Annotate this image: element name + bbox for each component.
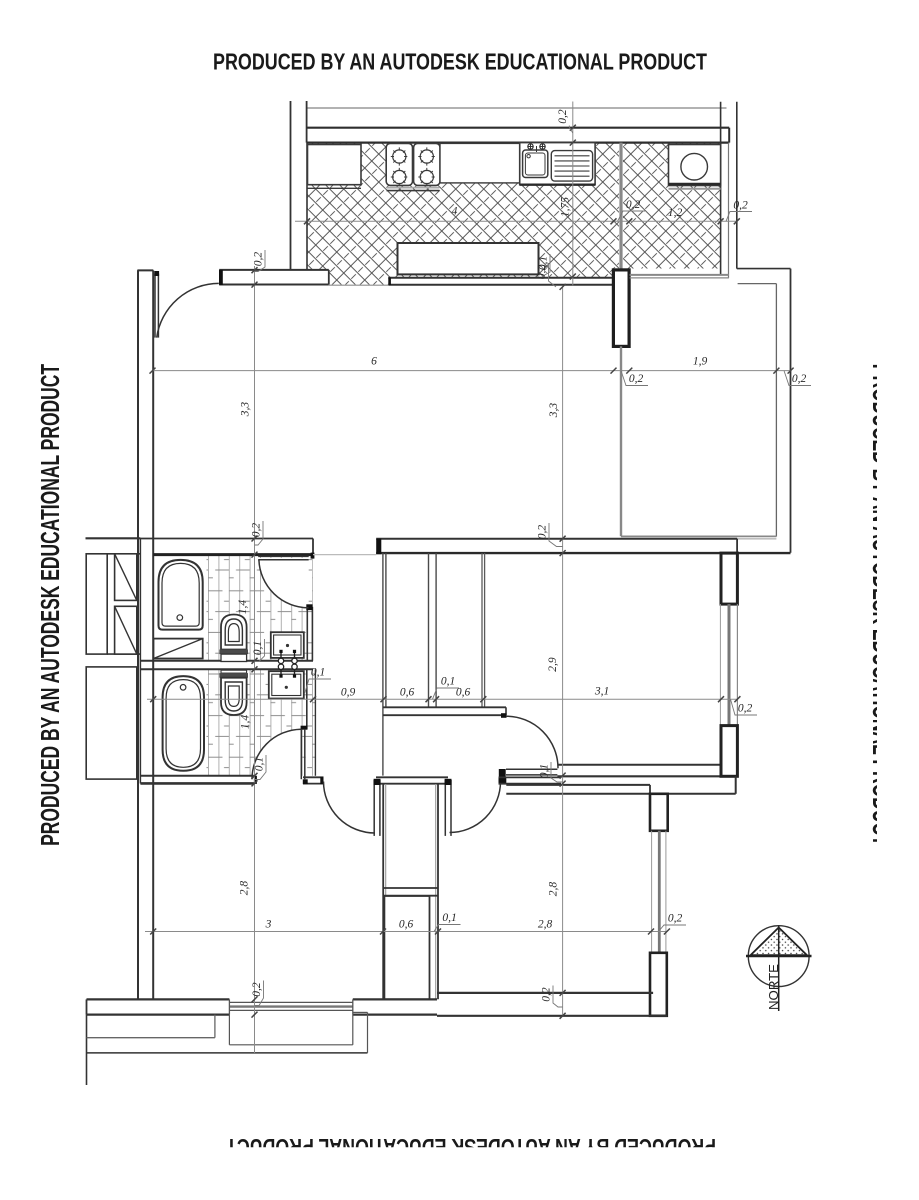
svg-text:2,8: 2,8 xyxy=(538,919,553,931)
svg-text:0,2: 0,2 xyxy=(738,703,753,715)
svg-text:0,2: 0,2 xyxy=(536,265,548,280)
svg-text:0,2: 0,2 xyxy=(626,199,641,211)
svg-text:0,1: 0,1 xyxy=(442,912,456,924)
svg-text:PRODUCED BY AN AUTODESK EDUCAT: PRODUCED BY AN AUTODESK EDUCATIONAL PROD… xyxy=(37,364,65,846)
svg-text:0,2: 0,2 xyxy=(541,987,553,1002)
svg-text:NORTE: NORTE xyxy=(767,964,781,1010)
svg-text:4: 4 xyxy=(452,206,458,218)
svg-text:0,1: 0,1 xyxy=(252,641,264,655)
svg-text:1,4: 1,4 xyxy=(239,715,251,730)
svg-text:2,9: 2,9 xyxy=(547,657,559,672)
svg-text:2,8: 2,8 xyxy=(548,882,560,897)
svg-text:0,6: 0,6 xyxy=(400,687,415,699)
svg-text:PRODUCED BY AN AUTODESK EDUCAT: PRODUCED BY AN AUTODESK EDUCATIONAL PROD… xyxy=(213,48,707,74)
svg-text:0,2: 0,2 xyxy=(733,200,748,212)
svg-text:1,9: 1,9 xyxy=(693,356,708,368)
svg-text:3,3: 3,3 xyxy=(548,403,560,419)
svg-text:0,1: 0,1 xyxy=(254,757,266,771)
svg-text:2,8: 2,8 xyxy=(239,881,251,896)
svg-text:3,1: 3,1 xyxy=(594,686,609,698)
svg-text:0,6: 0,6 xyxy=(456,687,471,699)
svg-text:0,2: 0,2 xyxy=(792,373,807,385)
svg-text:0,1: 0,1 xyxy=(441,676,455,688)
svg-text:0,2: 0,2 xyxy=(251,982,263,997)
svg-text:3: 3 xyxy=(265,919,272,931)
svg-text:1,2: 1,2 xyxy=(668,207,683,219)
svg-text:0,2: 0,2 xyxy=(629,373,644,385)
svg-text:3,3: 3,3 xyxy=(239,402,251,418)
svg-text:0,2: 0,2 xyxy=(557,109,569,124)
svg-text:1,75: 1,75 xyxy=(560,197,572,217)
svg-text:1,4: 1,4 xyxy=(237,600,249,615)
svg-text:0,2: 0,2 xyxy=(251,523,263,538)
svg-text:0,1: 0,1 xyxy=(539,764,551,778)
svg-text:6: 6 xyxy=(371,356,377,368)
svg-text:0,9: 0,9 xyxy=(341,687,356,699)
svg-text:0,1: 0,1 xyxy=(311,667,325,679)
svg-text:0,2: 0,2 xyxy=(537,525,549,540)
svg-text:0,2: 0,2 xyxy=(668,913,683,925)
svg-text:0,6: 0,6 xyxy=(399,919,414,931)
svg-text:0,2: 0,2 xyxy=(253,252,265,267)
